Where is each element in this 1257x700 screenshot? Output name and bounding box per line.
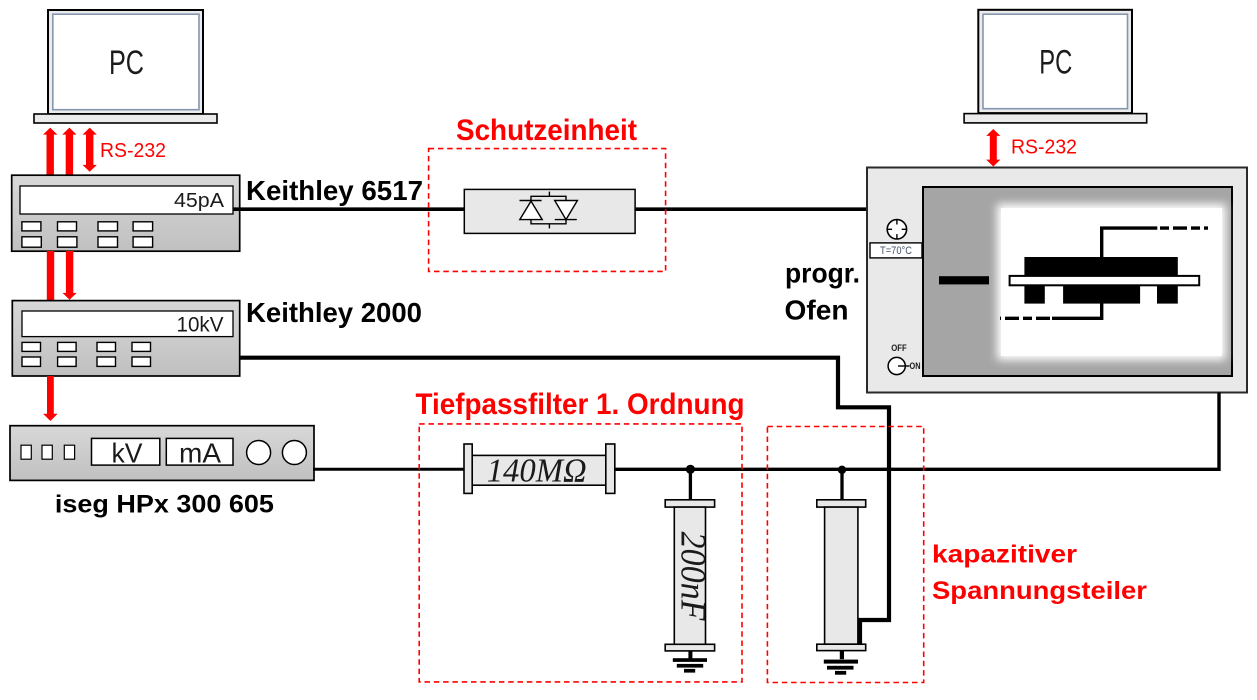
svg-text:iseg HPx 300 605: iseg HPx 300 605 <box>55 491 274 519</box>
svg-text:kapazitiver: kapazitiver <box>932 540 1077 568</box>
svg-text:ON: ON <box>910 361 921 372</box>
svg-text:Keithley 6517: Keithley 6517 <box>246 175 423 206</box>
svg-text:RS-232: RS-232 <box>100 139 166 162</box>
svg-text:mA: mA <box>179 438 221 469</box>
svg-text:200nF: 200nF <box>674 532 714 622</box>
svg-text:T=70°C: T=70°C <box>880 245 912 257</box>
svg-text:PC: PC <box>109 44 144 82</box>
svg-text:Keithley 2000: Keithley 2000 <box>246 297 422 328</box>
svg-text:PC: PC <box>1039 43 1072 81</box>
svg-text:10kV: 10kV <box>177 314 224 337</box>
svg-text:140MΩ: 140MΩ <box>487 453 587 490</box>
svg-text:progr.: progr. <box>785 258 860 289</box>
svg-text:45pA: 45pA <box>174 190 225 212</box>
svg-text:Tiefpassfilter 1. Ordnung: Tiefpassfilter 1. Ordnung <box>416 388 745 421</box>
svg-text:OFF: OFF <box>891 343 907 354</box>
svg-text:Schutzeinheit: Schutzeinheit <box>456 114 637 147</box>
svg-text:RS-232: RS-232 <box>1011 136 1077 159</box>
svg-text:Ofen: Ofen <box>785 295 849 326</box>
svg-text:Spannungsteiler: Spannungsteiler <box>932 577 1147 605</box>
svg-text:kV: kV <box>112 438 143 469</box>
